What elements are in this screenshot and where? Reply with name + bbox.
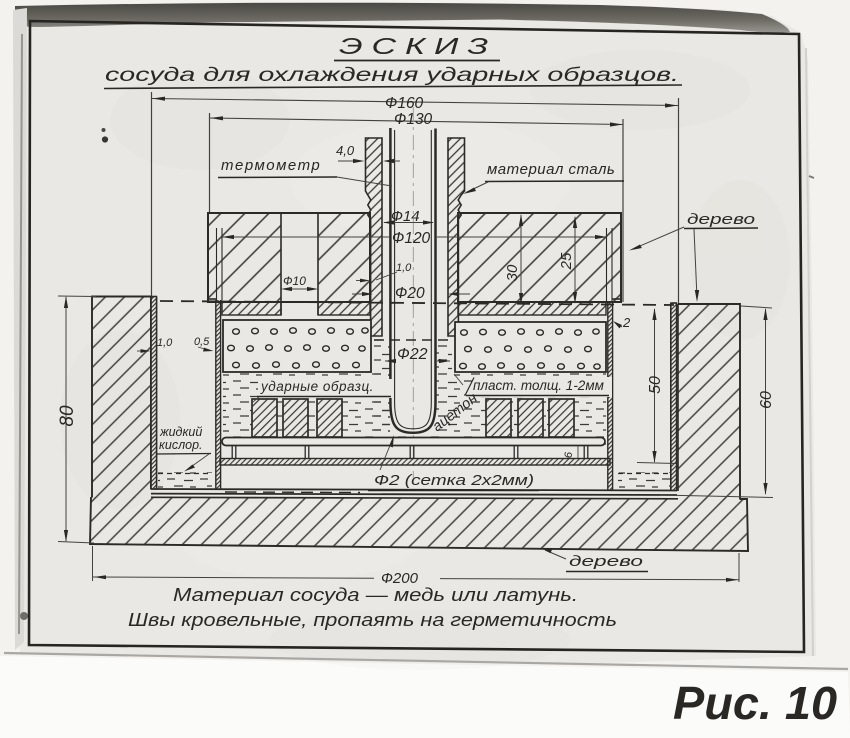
svg-text:Ф20: Ф20 <box>395 285 425 302</box>
svg-text:ЭСКИЗ: ЭСКИЗ <box>339 33 497 59</box>
svg-text:30: 30 <box>504 264 521 281</box>
svg-text:0,5: 0,5 <box>194 336 210 348</box>
svg-text:материал сталь: материал сталь <box>487 161 615 178</box>
svg-text:Ф2 (сетка 2х2мм): Ф2 (сетка 2х2мм) <box>374 472 534 489</box>
svg-text:Ф10: Ф10 <box>283 274 306 288</box>
svg-text:50: 50 <box>647 376 664 394</box>
svg-text:Материал сосуда — медь или лат: Материал сосуда — медь или латунь. <box>173 585 578 605</box>
svg-text:термометр: термометр <box>221 157 321 174</box>
svg-text:жидкий: жидкий <box>159 425 202 439</box>
svg-text:80: 80 <box>57 405 78 427</box>
svg-text:дерево: дерево <box>569 553 643 570</box>
svg-text:сосуда для охлаждения ударных: сосуда для охлаждения ударных образцов. <box>105 64 679 86</box>
svg-text:дерево: дерево <box>687 211 755 228</box>
svg-text:Ф22: Ф22 <box>397 346 428 363</box>
svg-text:25: 25 <box>558 252 575 270</box>
svg-text:4,0: 4,0 <box>336 143 355 158</box>
svg-text:Ф120: Ф120 <box>392 230 431 247</box>
svg-text:Швы кровельные, пропаять на ге: Швы кровельные, пропаять на герметичност… <box>128 610 617 630</box>
svg-text:пласт. толщ. 1-2мм: пласт. толщ. 1-2мм <box>473 378 604 393</box>
svg-text:1,0: 1,0 <box>157 337 173 349</box>
svg-text:2: 2 <box>622 315 631 330</box>
svg-text:ударные образц.: ударные образц. <box>260 379 374 394</box>
svg-text:Ф160: Ф160 <box>385 95 424 112</box>
svg-text:6: 6 <box>563 451 575 458</box>
svg-text:1,0: 1,0 <box>396 262 412 274</box>
svg-text:кислор.: кислор. <box>159 438 203 452</box>
svg-text:60: 60 <box>758 391 775 409</box>
svg-text:Рис. 10: Рис. 10 <box>673 677 837 729</box>
